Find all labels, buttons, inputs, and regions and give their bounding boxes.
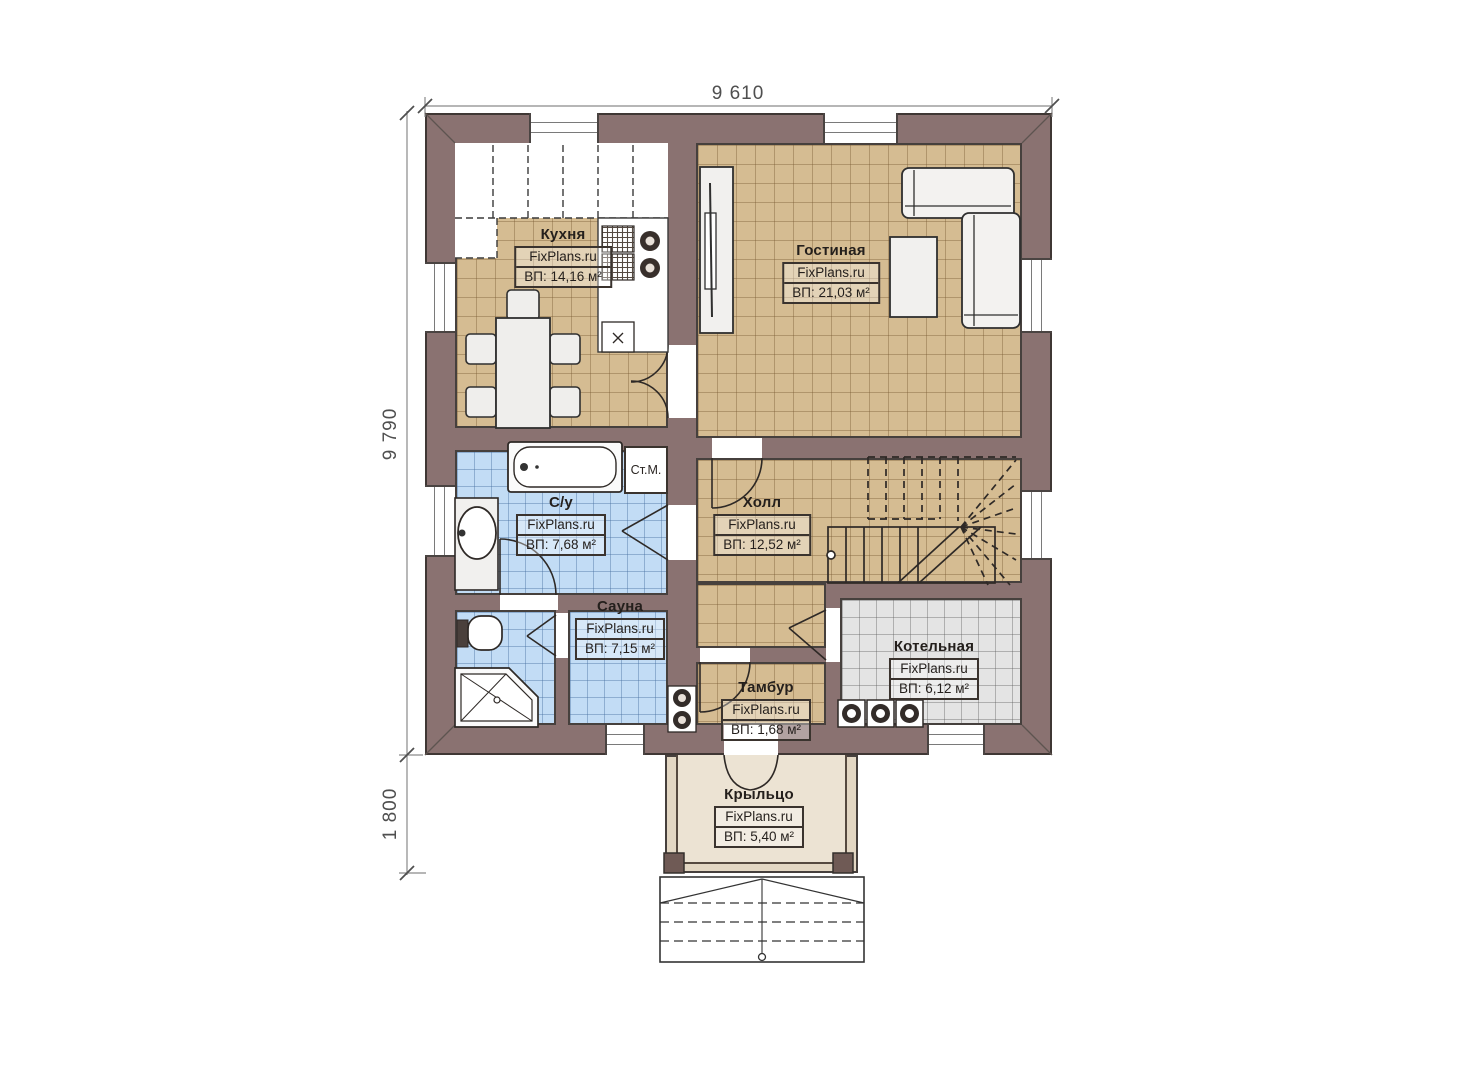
room-info-box: FixPlans.ru ВП: 7,15 м² [575,618,665,660]
area-text: ВП: 5,40 м² [716,828,802,846]
stairs-upper-flight-dashed [868,457,1016,585]
area-text: ВП: 14,16 м² [516,268,610,286]
bathtub [508,442,622,492]
area-text: ВП: 12,52 м² [715,536,809,554]
washing-machine: Ст.М. [624,446,668,494]
brand-text: FixPlans.ru [784,264,878,284]
vent-duct [668,686,696,732]
room-name: Крыльцо [714,786,804,803]
toilet [457,616,502,650]
shower-tray [455,668,538,727]
area-text: ВП: 1,68 м² [723,721,809,739]
dimension-porch-label: 1 800 [380,788,402,841]
dimension-width-label: 9 610 [712,83,765,105]
room-name: Холл [713,494,811,511]
entrance-steps [660,877,864,962]
room-label-boiler: Котельная FixPlans.ru ВП: 6,12 м² [889,638,979,700]
room-label-living: Гостиная FixPlans.ru ВП: 21,03 м² [782,242,880,304]
room-info-box: FixPlans.ru ВП: 14,16 м² [514,246,612,288]
room-name: С/у [516,494,606,511]
dimension-height-label: 9 790 [380,408,402,461]
room-name: Котельная [889,638,979,655]
room-info-box: FixPlans.ru ВП: 6,12 м² [889,658,979,700]
brand-text: FixPlans.ru [891,660,977,680]
washing-machine-label: Ст.М. [631,463,662,477]
coffee-table [890,237,937,317]
brand-text: FixPlans.ru [715,516,809,536]
porch-posts [664,853,853,873]
floor-plan-canvas: 9 610 9 790 1 800 Ст.М. [0,0,1473,1080]
room-label-sauna: Сауна FixPlans.ru ВП: 7,15 м² [575,598,665,660]
dining-table-set [466,290,580,428]
brand-text: FixPlans.ru [716,808,802,828]
area-text: ВП: 21,03 м² [784,284,878,302]
room-name: Кухня [514,226,612,243]
area-text: ВП: 6,12 м² [891,680,977,698]
area-text: ВП: 7,68 м² [518,536,604,554]
room-info-box: FixPlans.ru ВП: 5,40 м² [714,806,804,848]
room-label-bathroom: С/у FixPlans.ru ВП: 7,68 м² [516,494,606,556]
room-name: Гостиная [782,242,880,259]
room-name: Тамбур [721,679,811,696]
stairs-lower-flight [827,527,995,583]
staircase [827,457,1016,585]
room-info-box: FixPlans.ru ВП: 7,68 м² [516,514,606,556]
room-info-box: FixPlans.ru ВП: 1,68 м² [721,699,811,741]
brand-text: FixPlans.ru [723,701,809,721]
boiler-units [838,700,923,727]
tv-cabinet [700,167,733,333]
room-info-box: FixPlans.ru ВП: 21,03 м² [782,262,880,304]
kitchen-sink [602,322,634,352]
room-label-porch: Крыльцо FixPlans.ru ВП: 5,40 м² [714,786,804,848]
brand-text: FixPlans.ru [577,620,663,640]
area-text: ВП: 7,15 м² [577,640,663,658]
brand-text: FixPlans.ru [518,516,604,536]
washbasin [455,498,498,590]
room-label-hall: Холл FixPlans.ru ВП: 12,52 м² [713,494,811,556]
room-name: Сауна [575,598,665,615]
room-info-box: FixPlans.ru ВП: 12,52 м² [713,514,811,556]
room-label-kitchen: Кухня FixPlans.ru ВП: 14,16 м² [514,226,612,288]
room-label-tambour: Тамбур FixPlans.ru ВП: 1,68 м² [721,679,811,741]
brand-text: FixPlans.ru [516,248,610,268]
